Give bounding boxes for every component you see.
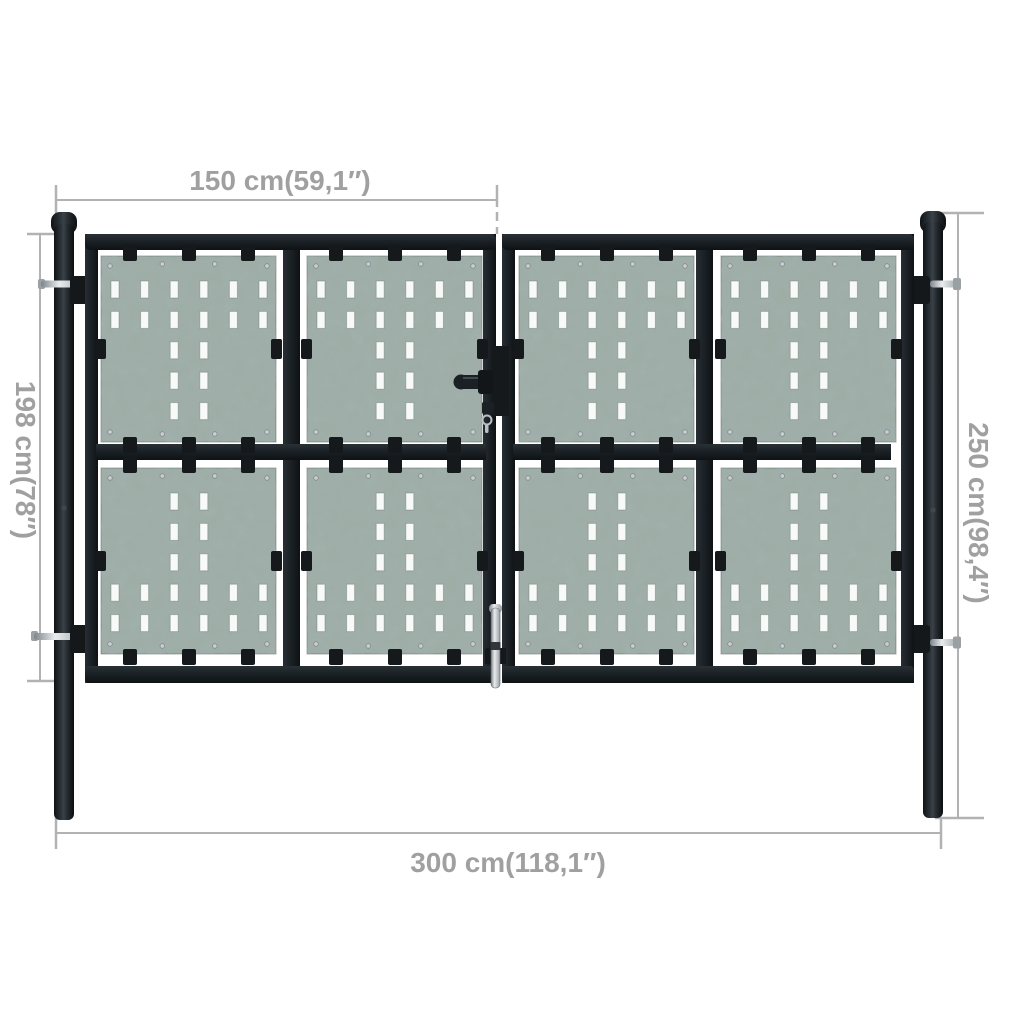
panel-slot [588,523,596,540]
panel-slot [406,554,414,571]
panel-slot [229,281,237,298]
panel-screw [471,430,476,435]
panel-clip-top [241,457,255,473]
panel-mottle-texture [307,468,482,654]
panel-slot [820,554,828,571]
panel-slot [588,281,596,298]
panel-clip-top [743,245,757,261]
panel-slot [820,403,828,420]
panel-slot [879,311,887,328]
panel-slot [820,493,828,510]
panel-slot [347,584,355,601]
panel-mottle-texture [721,468,896,654]
panel-slot [200,403,208,420]
panel-slot [731,584,739,601]
panel-clip-top [241,245,255,261]
panel-clip-top [329,457,343,473]
panel-screw [314,642,319,647]
panel-screw [366,474,371,479]
panel-screw [160,644,165,649]
panel-screw [833,644,838,649]
panel-clip-bottom [388,437,402,453]
panel-screw [419,474,424,479]
panel-clip-bottom [743,649,757,665]
panel-clip-left [513,551,524,571]
panel-slot [618,311,626,328]
panel-screw [526,264,531,269]
panel-screw [160,474,165,479]
panel-clip-bottom [861,649,875,665]
dimension-bottom: 300 cm(118,1″) [56,818,941,878]
panel-clip-bottom [541,437,555,453]
panel-slot [879,615,887,632]
panel-screw [419,432,424,437]
latch-plate [492,346,509,416]
panel-clip-left [301,339,312,359]
panel-slot [588,584,596,601]
panel-screw [631,644,636,649]
panel-clip-bottom [659,649,673,665]
panel-screw [314,430,319,435]
panel-clip-bottom [861,437,875,453]
product-image: 150 cm(59,1″) 198 cm(78″) 250 cm(98,4″) … [0,0,1024,1024]
panel-slot [376,493,384,510]
panel-screw [265,264,270,269]
panel-slot [677,311,685,328]
panel-screw [683,430,688,435]
panel-slot [849,615,857,632]
panel-screw [471,264,476,269]
panel-slot [347,281,355,298]
leaf-right-top-rail [502,234,914,250]
panel-screw [578,262,583,267]
panel-screw [780,432,785,437]
panel-clip-top [600,457,614,473]
leaf-left-bottom-rail [85,666,496,683]
panel-screw [631,262,636,267]
panel-screw [526,476,531,481]
panel-slot [170,584,178,601]
panel-slot [406,311,414,328]
panel-slot [141,311,149,328]
panel-slot [677,584,685,601]
panel-clip-bottom [541,649,555,665]
panel-screw [885,476,890,481]
panel-slot [170,403,178,420]
panel-clip-right [477,551,488,571]
panel-screw [885,430,890,435]
panel-slot [435,615,443,632]
leaf-right-bottom-rail [502,666,914,683]
panel-slot [849,311,857,328]
panel-screw [833,474,838,479]
panel-clip-top [123,457,137,473]
panel-slot [618,342,626,359]
panel-clip-top [541,457,555,473]
panel-slot [435,584,443,601]
panel-slot [790,554,798,571]
panel-slot [435,281,443,298]
panel-slot [317,281,325,298]
panel-clip-bottom [329,649,343,665]
panel-screw [265,430,270,435]
panel-screw [419,644,424,649]
panel-slot [588,554,596,571]
panel-slot [200,523,208,540]
panel-screw [526,430,531,435]
panel-clip-right [271,339,282,359]
panel-clip-left [95,339,106,359]
panel-slot [588,493,596,510]
dimension-right: 250 cm(98,4″) [935,213,994,818]
panel-slot [761,615,769,632]
panel-slot [820,372,828,389]
panel-screw [366,432,371,437]
left-post-screw [61,505,66,510]
panel-slot [200,281,208,298]
panel-slot [111,615,119,632]
gate-panel-top-3 [513,245,700,453]
panel-slot [200,554,208,571]
panel-slot [406,403,414,420]
panel-slot [559,281,567,298]
dimension-left: 198 cm(78″) [10,234,56,681]
panel-slot [790,403,798,420]
panel-slot [618,584,626,601]
panel-clip-top [659,245,673,261]
panel-slot [141,281,149,298]
panel-screw [314,476,319,481]
panel-clip-right [891,339,902,359]
panel-slot [317,311,325,328]
panel-slot [465,311,473,328]
panel-slot [376,523,384,540]
panel-slot [647,615,655,632]
panel-screw [526,642,531,647]
panel-slot [406,342,414,359]
dimension-right-label: 250 cm(98,4″) [963,422,994,604]
dimension-top: 150 cm(59,1″) [56,165,497,234]
panel-screw [213,474,218,479]
panel-slot [229,584,237,601]
leaf-right-mid-rail [513,444,891,460]
panel-slot [761,584,769,601]
panel-screw [683,264,688,269]
panel-slot [820,615,828,632]
panel-slot [820,281,828,298]
panel-slot [790,615,798,632]
panel-clip-bottom [241,437,255,453]
panel-slot [618,281,626,298]
panel-mottle-texture [721,256,896,442]
panel-clip-left [301,551,312,571]
panel-mottle-texture [519,468,694,654]
panel-slot [647,311,655,328]
panel-clip-top [802,245,816,261]
panel-slot [647,281,655,298]
panel-slot [141,584,149,601]
panel-slot [111,311,119,328]
panel-slot [529,584,537,601]
panel-screw [728,430,733,435]
gate-dimension-diagram: 150 cm(59,1″) 198 cm(78″) 250 cm(98,4″) … [0,0,1024,1024]
panel-screw [885,264,890,269]
panel-slot [170,342,178,359]
panel-screw [419,262,424,267]
panel-slot [317,615,325,632]
panel-screw [885,642,890,647]
panel-slot [731,311,739,328]
panel-slot [790,584,798,601]
panel-slot [376,403,384,420]
panel-clip-top [388,245,402,261]
panel-slot [588,311,596,328]
panel-mottle-texture [101,468,276,654]
panel-slot [317,584,325,601]
panel-slot [259,281,267,298]
panel-screw [578,474,583,479]
panel-slot [618,523,626,540]
panel-screw [213,432,218,437]
panel-clip-bottom [600,649,614,665]
panel-slot [376,342,384,359]
panel-slot [559,311,567,328]
panel-clip-top [182,245,196,261]
panel-slot [588,615,596,632]
panel-screw [683,476,688,481]
panel-clip-right [477,339,488,359]
panel-slot [849,281,857,298]
panel-screw [833,432,838,437]
panel-slot [376,311,384,328]
panel-screw [160,432,165,437]
panel-clip-left [95,551,106,571]
panel-slot [731,615,739,632]
panel-slot [200,584,208,601]
panel-slot [790,281,798,298]
panel-slot [200,615,208,632]
panel-screw [728,476,733,481]
panel-screw [578,432,583,437]
panel-clip-top [659,457,673,473]
panel-slot [406,281,414,298]
panel-screw [833,262,838,267]
panel-slot [677,615,685,632]
panel-slot [588,342,596,359]
panel-slot [465,615,473,632]
panel-screw [578,644,583,649]
panel-clip-left [715,339,726,359]
panel-clip-right [271,551,282,571]
leaf-left-mid-rail [96,444,486,460]
panel-slot [790,372,798,389]
panel-clip-bottom [743,437,757,453]
panel-clip-top [182,457,196,473]
panel-slot [618,403,626,420]
panel-screw [213,262,218,267]
panel-clip-right [689,551,700,571]
panel-screw [780,644,785,649]
panel-slot [849,584,857,601]
gate-panel-bottom-4 [715,457,902,665]
panel-slot [376,584,384,601]
panel-slot [376,554,384,571]
panel-clip-top [600,245,614,261]
panel-clip-bottom [182,437,196,453]
panel-slot [820,342,828,359]
panel-clip-bottom [182,649,196,665]
panel-clip-bottom [659,437,673,453]
panel-slot [229,615,237,632]
panel-screw [108,476,113,481]
panel-slot [406,372,414,389]
panel-slot [790,493,798,510]
right-post-screw [930,507,935,512]
panel-clip-right [689,339,700,359]
panel-slot [170,523,178,540]
panel-mottle-texture [519,256,694,442]
panel-slot [618,493,626,510]
panel-screw [471,476,476,481]
panel-slot [820,523,828,540]
panel-slot [790,311,798,328]
dimension-bottom-label: 300 cm(118,1″) [410,847,606,878]
panel-slot [347,311,355,328]
panel-slot [406,615,414,632]
panel-clip-bottom [447,437,461,453]
panel-slot [347,615,355,632]
panel-slot [677,281,685,298]
panel-slot [618,554,626,571]
panel-slot [259,311,267,328]
panel-clip-bottom [123,437,137,453]
panel-slot [259,584,267,601]
panel-clip-top [447,245,461,261]
panel-slot [170,311,178,328]
panel-slot [465,584,473,601]
panel-screw [108,430,113,435]
panel-clip-top [447,457,461,473]
panel-slot [406,493,414,510]
panel-slot [559,584,567,601]
panel-screw [631,432,636,437]
panel-clip-bottom [329,437,343,453]
panel-clip-right [891,551,902,571]
panel-slot [170,554,178,571]
panel-screw [683,642,688,647]
panel-slot [200,311,208,328]
panel-slot [731,281,739,298]
gate-panel-top-2 [301,245,488,453]
panel-screw [728,642,733,647]
panel-clip-top [743,457,757,473]
panel-slot [259,615,267,632]
gate-panel-top-1 [95,245,282,453]
panel-screw [265,476,270,481]
panel-mottle-texture [307,256,482,442]
dimension-left-label: 198 cm(78″) [10,381,41,539]
panel-screw [314,264,319,269]
panel-screw [631,474,636,479]
panel-slot [879,584,887,601]
panel-slot [170,493,178,510]
panel-slot [588,403,596,420]
panel-clip-bottom [447,649,461,665]
panel-slot [170,281,178,298]
panel-clip-left [513,339,524,359]
panel-clip-bottom [802,649,816,665]
panel-screw [780,262,785,267]
panel-slot [170,372,178,389]
panel-slot [376,372,384,389]
panel-slot [141,615,149,632]
panel-slot [111,281,119,298]
panel-slot [465,281,473,298]
gate-panel-bottom-3 [513,457,700,665]
panel-clip-top [861,245,875,261]
panel-clip-top [329,245,343,261]
panel-slot [559,615,567,632]
leaf-right-stile-outer [901,234,914,683]
panel-slot [761,311,769,328]
panel-screw [213,644,218,649]
panel-screw [366,644,371,649]
panel-screw [108,264,113,269]
gate-panel-bottom-1 [95,457,282,665]
panel-slot [200,342,208,359]
gate-panel-bottom-2 [301,457,488,665]
panel-slot [435,311,443,328]
gate-panel-top-4 [715,245,902,453]
panel-clip-top [388,457,402,473]
panel-slot [647,584,655,601]
panel-slot [406,584,414,601]
panel-slot [529,615,537,632]
panel-slot [200,493,208,510]
panel-clip-top [541,245,555,261]
panel-clip-top [802,457,816,473]
panel-slot [229,311,237,328]
panel-slot [618,372,626,389]
panel-clip-bottom [123,649,137,665]
panel-screw [265,642,270,647]
panel-slot [618,615,626,632]
panel-clip-top [861,457,875,473]
panel-screw [471,642,476,647]
panel-slot [406,523,414,540]
panel-slot [820,584,828,601]
panel-slot [529,311,537,328]
panel-slot [790,342,798,359]
panel-screw [780,474,785,479]
panel-clip-bottom [388,649,402,665]
panel-slot [820,311,828,328]
dimension-top-label: 150 cm(59,1″) [189,165,371,196]
panel-slot [200,372,208,389]
panel-slot [588,372,596,389]
panel-clip-top [123,245,137,261]
panel-slot [529,281,537,298]
panel-mottle-texture [101,256,276,442]
panel-slot [761,281,769,298]
panel-screw [366,262,371,267]
panel-slot [376,281,384,298]
panel-slot [376,615,384,632]
panel-screw [108,642,113,647]
panel-slot [879,281,887,298]
leaf-left-top-rail [85,234,496,250]
panel-screw [160,262,165,267]
